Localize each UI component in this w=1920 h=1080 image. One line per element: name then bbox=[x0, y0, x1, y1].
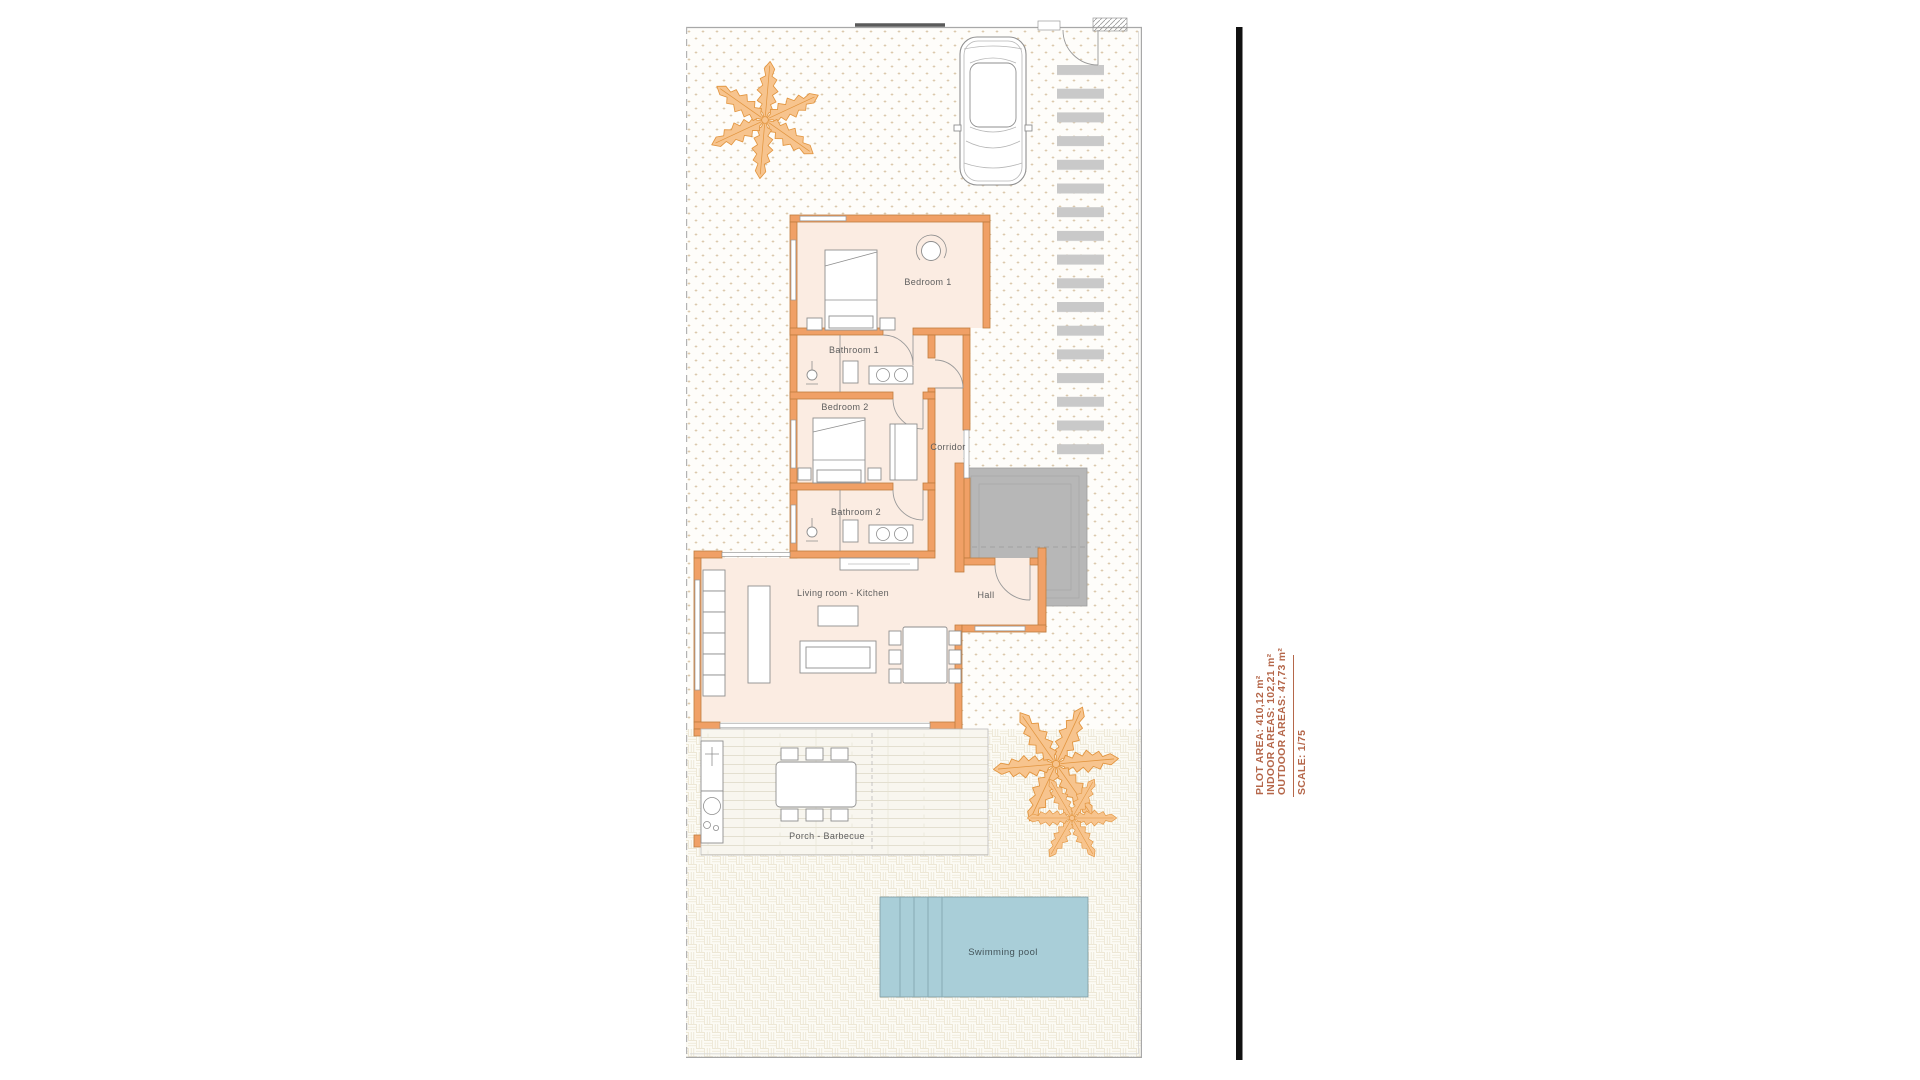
room-label-living-kitchen: Living room - Kitchen bbox=[797, 588, 889, 598]
entry-hatch-marker bbox=[1093, 18, 1127, 31]
barbecue-sink-icon bbox=[701, 741, 723, 791]
sliding-door-window bbox=[720, 723, 930, 728]
room-label-porch: Porch - Barbecue bbox=[789, 831, 865, 841]
double-sink-icon bbox=[869, 525, 913, 543]
info-panel: PLOT AREA: 410,12 m² INDOOR AREAS: 102,2… bbox=[1254, 648, 1308, 797]
outdoor-dining-table-icon bbox=[776, 748, 856, 821]
barbecue-grill-icon bbox=[701, 791, 723, 843]
room-label-swimming-pool: Swimming pool bbox=[968, 947, 1038, 958]
room-label-bedroom-2: Bedroom 2 bbox=[821, 402, 868, 412]
sideboard-icon bbox=[840, 558, 918, 570]
bathroom-cabinet bbox=[843, 520, 858, 542]
room-label-bathroom-1: Bathroom 1 bbox=[829, 345, 879, 355]
kitchen-island-icon bbox=[748, 586, 770, 683]
window bbox=[800, 216, 846, 221]
dining-table-icon bbox=[889, 627, 961, 683]
window bbox=[791, 420, 796, 468]
window bbox=[722, 553, 790, 557]
coffee-table-icon bbox=[818, 606, 858, 626]
gate-post bbox=[1038, 21, 1060, 30]
kitchen-counter-icon bbox=[703, 570, 725, 696]
window bbox=[791, 240, 796, 300]
room-label-bathroom-2: Bathroom 2 bbox=[831, 507, 881, 517]
room-label-hall: Hall bbox=[978, 590, 995, 600]
walkway-stripes bbox=[1057, 65, 1104, 455]
outdoor-areas-text: OUTDOOR AREAS: 47,73 m² bbox=[1276, 648, 1288, 795]
floor-plan-canvas: Bedroom 1 Bathroom 1 Bedroom 2 Corridor … bbox=[0, 0, 1920, 1080]
room-label-bedroom-1: Bedroom 1 bbox=[904, 277, 951, 287]
room-label-corridor: Corridor bbox=[930, 442, 965, 452]
wardrobe-icon bbox=[890, 424, 917, 480]
bathroom-cabinet bbox=[843, 361, 858, 383]
window bbox=[695, 580, 700, 690]
scale-text: SCALE: 1/75 bbox=[1296, 730, 1308, 795]
window bbox=[964, 430, 969, 478]
sofa-icon bbox=[800, 641, 876, 673]
window bbox=[975, 626, 1025, 631]
window bbox=[791, 505, 796, 543]
room-hall bbox=[962, 558, 1038, 625]
car-icon bbox=[954, 37, 1032, 185]
floor-plan-page: Bedroom 1 Bathroom 1 Bedroom 2 Corridor … bbox=[0, 0, 1920, 1080]
divider-bar bbox=[1236, 27, 1243, 1060]
double-sink-icon bbox=[869, 366, 913, 384]
